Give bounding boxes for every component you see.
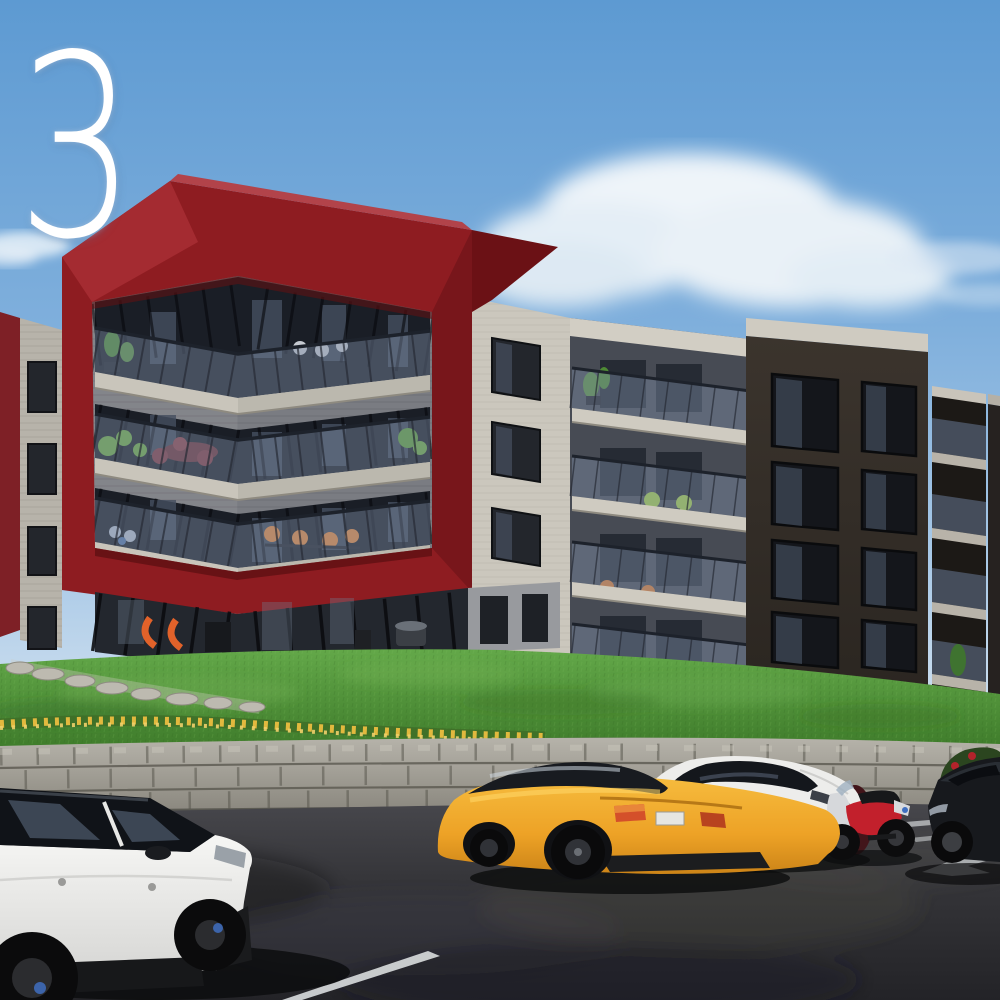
ground-side-window xyxy=(480,596,508,644)
left-edge-building xyxy=(0,312,62,649)
bike-tail-accent xyxy=(902,807,908,813)
suv-brake-caliper xyxy=(213,923,223,933)
apartment-rendering xyxy=(0,0,1000,1000)
yellow-taillight-right xyxy=(700,812,726,828)
frame-balcony-rows xyxy=(95,328,430,584)
yellow-hub xyxy=(574,848,582,856)
unit-number-label: 3 xyxy=(17,23,136,275)
far-right-face xyxy=(988,404,1000,710)
far-right-fascia xyxy=(988,394,1000,406)
suv-front-rim xyxy=(12,958,52,998)
bike-swingarm xyxy=(868,836,896,838)
sedan-rim xyxy=(942,832,962,852)
suv-door-handle xyxy=(58,878,66,886)
suv-mirror xyxy=(145,846,171,860)
left-red-pilaster xyxy=(0,312,20,637)
ground-side-window xyxy=(522,594,548,642)
dark-balcony-plant xyxy=(950,644,966,676)
rendering-canvas: 3 xyxy=(0,0,1000,1000)
suv-door-handle xyxy=(148,883,156,891)
yellow-front-rim xyxy=(480,839,498,857)
license-plate xyxy=(656,812,684,825)
suv-brake-caliper xyxy=(34,982,46,994)
